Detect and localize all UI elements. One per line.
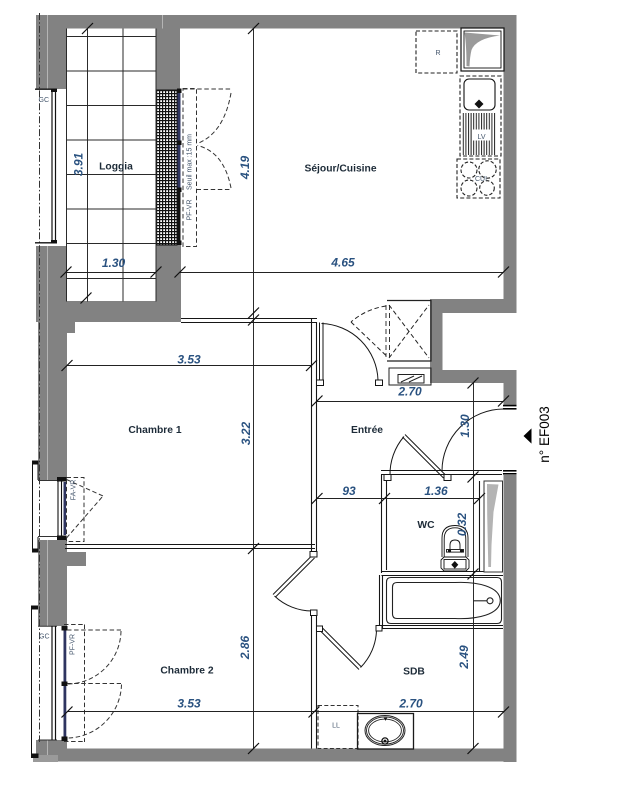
svg-text:3.53: 3.53 xyxy=(177,353,201,367)
svg-text:2.70: 2.70 xyxy=(398,697,423,711)
svg-text:Chambre 1: Chambre 1 xyxy=(128,425,181,436)
svg-text:Séjour/Cuisine: Séjour/Cuisine xyxy=(304,164,376,175)
svg-text:FA-VR: FA-VR xyxy=(71,480,78,501)
svg-text:4.19: 4.19 xyxy=(238,155,252,180)
svg-text:R: R xyxy=(435,50,440,57)
svg-text:Entrée: Entrée xyxy=(351,425,383,436)
svg-text:PF-VR: PF-VR xyxy=(187,200,194,221)
svg-text:LV: LV xyxy=(477,134,485,141)
svg-text:1.30: 1.30 xyxy=(102,256,126,270)
svg-text:2.49: 2.49 xyxy=(457,645,471,670)
svg-text:3.22: 3.22 xyxy=(239,421,253,445)
svg-text:Chambre 2: Chambre 2 xyxy=(160,666,213,677)
svg-text:PF-VR: PF-VR xyxy=(70,634,77,655)
svg-text:Seuil max :15 mm: Seuil max :15 mm xyxy=(187,134,194,190)
svg-text:SDB: SDB xyxy=(403,667,425,678)
svg-text:2.86: 2.86 xyxy=(238,635,252,660)
svg-text:4.65: 4.65 xyxy=(330,256,355,270)
svg-text:2.70: 2.70 xyxy=(397,385,422,399)
svg-text:3.91: 3.91 xyxy=(72,152,86,176)
svg-text:1.36: 1.36 xyxy=(424,484,448,498)
svg-text:Loggia: Loggia xyxy=(99,162,133,173)
svg-text:WC: WC xyxy=(417,520,435,531)
svg-text:3.53: 3.53 xyxy=(177,697,201,711)
svg-text:93: 93 xyxy=(342,484,356,498)
svg-text:GC: GC xyxy=(39,634,50,641)
svg-text:n° EF003: n° EF003 xyxy=(537,406,552,462)
svg-text:1.30: 1.30 xyxy=(458,414,472,438)
svg-text:0.32: 0.32 xyxy=(455,512,469,536)
svg-text:GC: GC xyxy=(39,97,50,104)
svg-text:CUI: CUI xyxy=(475,176,487,183)
svg-text:LL: LL xyxy=(332,723,340,730)
